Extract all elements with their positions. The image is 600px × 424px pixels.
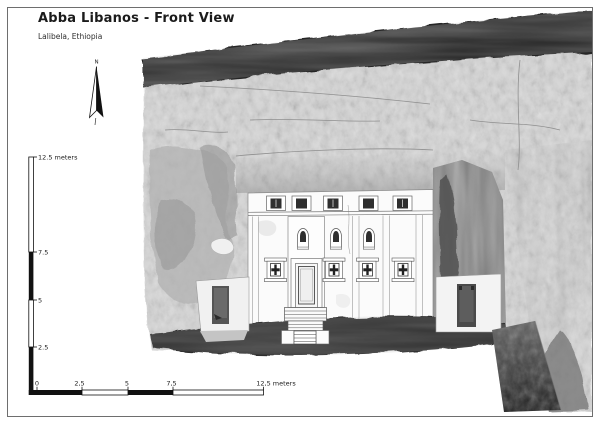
hscale-label-7-5: 7,5 [166,380,176,388]
vscale-label-2-5: 2.5 [38,344,48,352]
church-facade [248,190,433,332]
vscale-label-7-5: 7.5 [38,249,48,257]
scale-segment [37,390,82,395]
north-label: N [94,60,98,66]
entrance-steps [282,308,330,345]
vscale-label-12-5: 12.5 meters [38,154,78,162]
north-arrow-icon [90,67,104,126]
scale-segment [173,390,264,395]
scale-segment [82,390,128,395]
scale-segment [29,252,34,300]
hscale-label-0: 0 [35,380,39,388]
cross-window [323,258,345,282]
scale-segment [29,347,34,395]
cross-window [357,258,379,282]
right-side-doorway [436,274,501,332]
hscale-label-12-5: 12,5 meters [256,380,296,388]
cross-window [265,258,287,282]
vertical-scale-bar: 12.5 meters 7.5 5 2.5 [29,154,78,396]
north-arrow: N [90,60,104,126]
left-side-doorway [196,277,249,342]
scale-segment [29,390,37,395]
vscale-label-5: 5 [38,297,42,305]
scan-view: N 12.5 meters 7.5 5 2.5 0 2,5 5 [0,0,600,424]
scale-segment [128,390,173,395]
scale-segment [29,157,34,252]
hscale-label-2-5: 2,5 [74,380,84,388]
scale-segment [29,300,34,347]
horizontal-scale-bar: 0 2,5 5 7,5 12,5 meters [29,380,297,396]
hscale-label-5: 5 [125,380,129,388]
scan-illustration [143,10,593,412]
cross-window [392,258,414,282]
entrance-door [291,259,322,308]
